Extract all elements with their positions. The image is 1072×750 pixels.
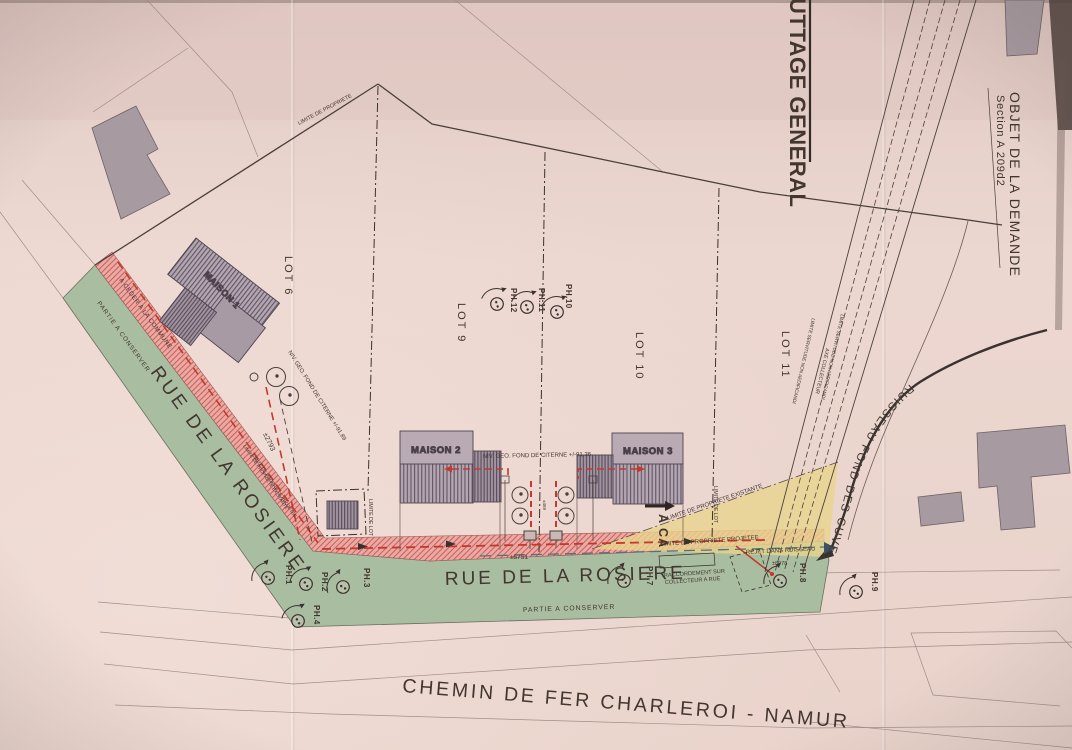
site-plan-photo: MAISON 1 MAISON 2 MAISON 3 [0,0,1072,750]
site-plan-svg: MAISON 1 MAISON 2 MAISON 3 [0,0,1072,750]
photo-vignette [0,0,1072,750]
